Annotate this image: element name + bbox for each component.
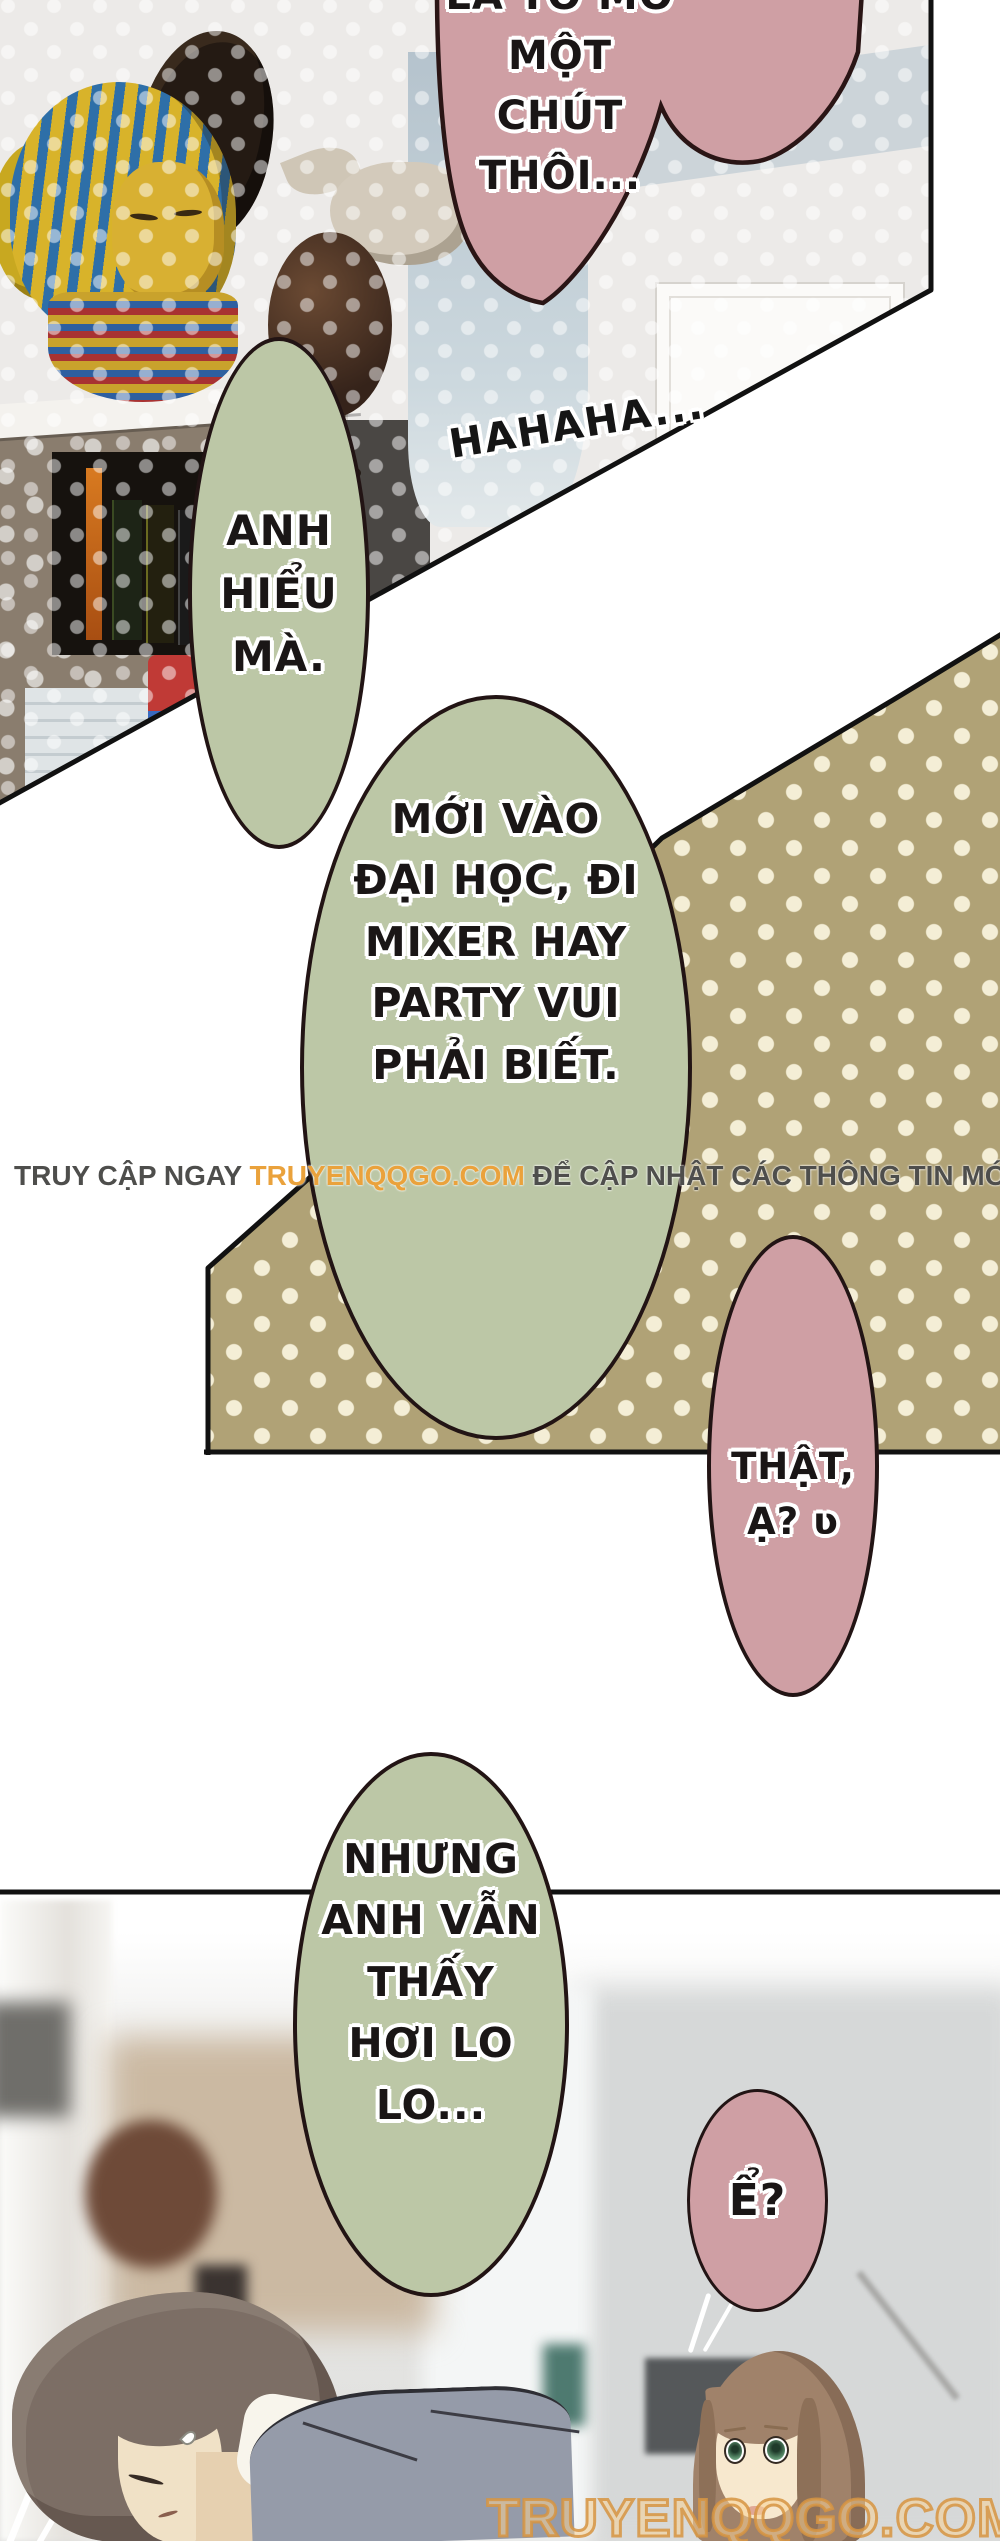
speech-bubble-really: THẬT, Ạ? ʋ [707, 1235, 879, 1697]
blurred-globe [85, 2120, 217, 2268]
speech-bubble-top-text: LÀ TỚ MƠ MỘT CHÚT THÔI... [440, 0, 680, 206]
girl-eye [724, 2438, 746, 2464]
book-spine [86, 468, 102, 640]
speech-bubble-college: MỚI VÀO ĐẠI HỌC, ĐI MIXER HAY PARTY VUI … [300, 695, 692, 1440]
book-spine [146, 505, 174, 643]
book-spine [112, 500, 142, 640]
watermark-footer: TRUYENQQGO.COM [487, 2488, 1000, 2541]
speech-bubble-worried: NHƯNG ANH VẪN THẤY HƠI LO LO... [293, 1752, 569, 2297]
watermark-site: TRUYENQQGO.COM [249, 1160, 524, 1191]
watermark-suffix: ĐỂ CẬP NHẬT CÁC THÔNG TIN MỚI NHẤT VỀ TR… [525, 1160, 1000, 1191]
watermark-prefix: TRUY CẬP NGAY [14, 1160, 249, 1191]
watermark-banner: TRUY CẬP NGAY TRUYENQQGO.COM ĐỂ CẬP NHẬT… [14, 1160, 994, 1192]
speech-bubble-eh: Ể? [687, 2089, 828, 2312]
blurred-object [0, 2002, 70, 2117]
comic-page: CLATTER LÀ TỚ MƠ MỘT CHÚT THÔI... ANH HI… [0, 0, 1000, 2541]
speech-bubble-understand: ANH HIỂU MÀ. [188, 337, 370, 849]
girl-eye [763, 2436, 789, 2464]
